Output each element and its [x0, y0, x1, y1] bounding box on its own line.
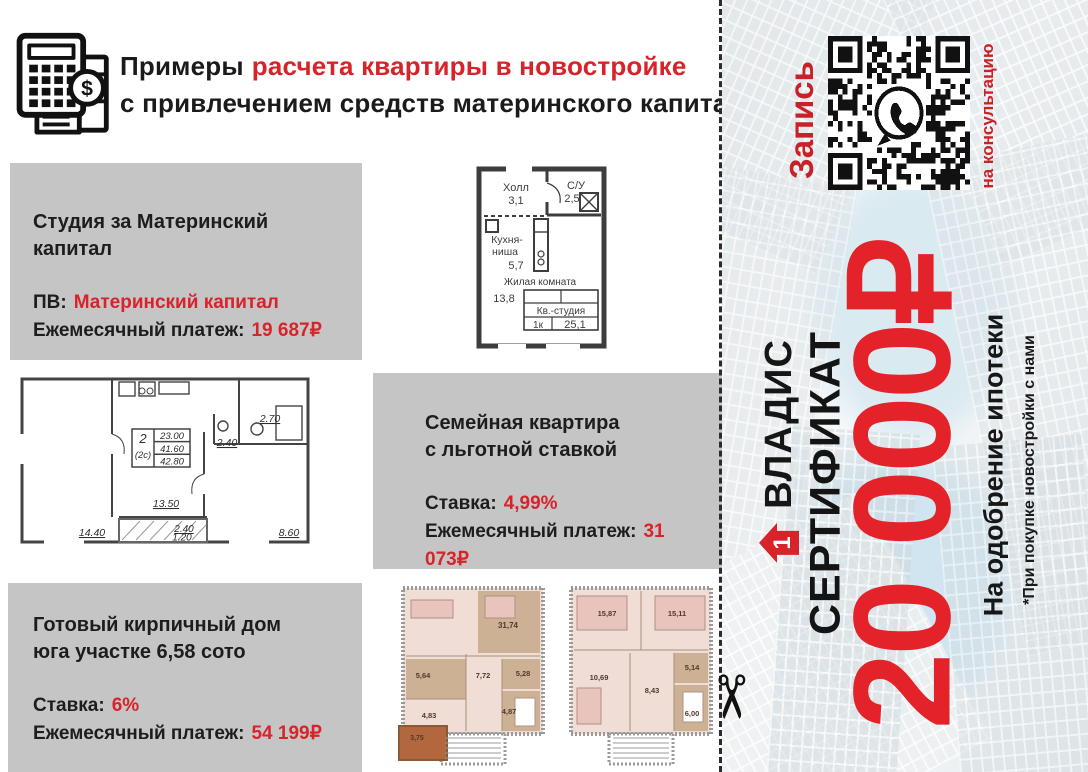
- offer-family-apartment: Семейная квартира с льготной ставкой Ста…: [373, 373, 722, 569]
- certificate-amount: 20 000₽: [822, 241, 983, 730]
- certificate-purpose: На одобрение ипотеки: [979, 314, 1010, 616]
- page-title-line2: с привлечением средств материнского капи…: [120, 85, 759, 122]
- svg-text:10,69: 10,69: [590, 673, 609, 682]
- offer-brick-house: Готовый кирпичный дом юга участке 6,58 с…: [8, 583, 362, 772]
- svg-text:13,8: 13,8: [493, 293, 514, 305]
- offer-row-payment: Ежемесячный платеж:31 073₽: [425, 518, 708, 574]
- room-area: 15,87: [598, 609, 617, 618]
- svg-text:ниша: ниша: [492, 246, 518, 258]
- brand-logo: 1 ВЛАДИС: [757, 339, 801, 565]
- offer-row-payment: Ежемесячный платеж:54 199₽: [33, 720, 348, 748]
- svg-text:3,1: 3,1: [508, 195, 523, 207]
- svg-text:5,64: 5,64: [416, 671, 431, 680]
- brand-name: ВЛАДИС: [758, 339, 801, 509]
- svg-text:15,11: 15,11: [668, 609, 686, 618]
- offer-row-rate: Ставка:6%: [33, 692, 348, 720]
- svg-text:1: 1: [769, 536, 796, 549]
- plan-type-label: Кв.-студия: [537, 306, 585, 317]
- room-label: С/У: [567, 180, 586, 192]
- cut-dashed-line: [719, 0, 722, 772]
- svg-text:8,43: 8,43: [645, 686, 660, 695]
- room-label: Холл: [503, 182, 529, 194]
- certificate-disclaimer: *При покупке новостройки с нами: [1021, 335, 1039, 605]
- room-label: Кухня-: [491, 234, 523, 246]
- offer-title: Готовый кирпичный дом юга участке 6,58 с…: [33, 612, 348, 666]
- svg-text:2,5: 2,5: [564, 193, 579, 205]
- svg-text:2.40: 2.40: [216, 437, 238, 449]
- svg-text:5,14: 5,14: [685, 663, 700, 672]
- vladis-house-icon: 1: [757, 521, 801, 565]
- room-label: Жилая комната: [504, 277, 577, 288]
- dimension-label: 13.50: [153, 498, 179, 510]
- offer-row-rate: Ставка:4,99%: [425, 490, 708, 518]
- svg-text:7,72: 7,72: [476, 671, 491, 680]
- qr-code: [828, 36, 970, 190]
- plan-rooms-count: 2: [138, 431, 147, 446]
- svg-text:1.20: 1.20: [172, 533, 192, 544]
- svg-text:3,75: 3,75: [410, 735, 424, 742]
- offer-row-downpayment: ПВ:Материнский капитал: [33, 289, 344, 317]
- title-highlight: расчета квартиры в новостройке: [252, 51, 687, 81]
- page-title: Примерырасчета квартиры в новостройке с …: [120, 48, 759, 122]
- svg-text:1к: 1к: [533, 320, 544, 331]
- svg-text:23.00: 23.00: [159, 431, 184, 442]
- svg-text:4,83: 4,83: [422, 711, 437, 720]
- scissors-icon: ✂: [700, 672, 760, 722]
- svg-text:2.70: 2.70: [259, 413, 281, 425]
- dimension-label: 14.40: [79, 527, 105, 539]
- floorplan-house: 31,74 7,72 5,64 5,28 4,83 4,87 3,75 15,8…: [393, 584, 723, 770]
- svg-text:8.60: 8.60: [279, 527, 300, 539]
- svg-text:5,7: 5,7: [508, 260, 523, 272]
- title-prefix: Примеры: [120, 51, 244, 81]
- svg-text:25,1: 25,1: [564, 319, 585, 331]
- calculator-document-dollar-icon: $: [8, 26, 114, 140]
- offer-title: Семейная квартира с льготной ставкой: [425, 410, 708, 464]
- tear-off-coupon: Запись на консультацию 1 ВЛАДИС СЕРТИФИК…: [722, 0, 1088, 772]
- offer-row-payment: Ежемесячный платеж:19 687₽: [33, 317, 344, 345]
- svg-text:4,87: 4,87: [502, 707, 517, 716]
- floorplan-two-room: 2 (2с) 23.00 41.60 42.80 14.40 13.50 2.4…: [14, 374, 316, 566]
- signup-sublabel: на консультацию: [978, 43, 998, 188]
- svg-text:41.60: 41.60: [160, 444, 184, 455]
- floorplan-studio: Холл 3,1 С/У 2,5 Кухня- ниша 5,7 Жилая к…: [476, 162, 608, 354]
- svg-text:(2с): (2с): [135, 450, 151, 461]
- svg-text:42.80: 42.80: [160, 457, 184, 468]
- page-title-line1: Примерырасчета квартиры в новостройке: [120, 48, 759, 85]
- svg-text:$: $: [81, 78, 93, 101]
- room-area: 31,74: [498, 621, 519, 630]
- offer-studio: Студия за Материнский капитал ПВ:Материн…: [10, 163, 362, 360]
- svg-text:5,28: 5,28: [516, 669, 531, 678]
- offer-title: Студия за Материнский капитал: [33, 209, 344, 263]
- signup-label: Запись: [783, 61, 821, 179]
- flyer-page: $ Примерырасчета квартиры в новостройке …: [0, 0, 1088, 772]
